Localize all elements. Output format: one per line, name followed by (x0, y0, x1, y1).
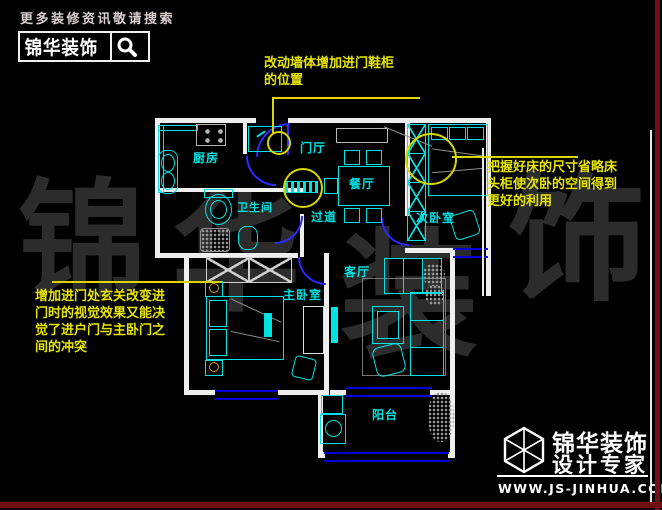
annotation-line: 间的冲突 (35, 339, 165, 356)
annotation-line: 改动墙体增加进门鞋柜 (264, 55, 394, 72)
dining-chair (344, 150, 360, 165)
annotation-top: 改动墙体增加进门鞋柜 的位置 (264, 55, 394, 89)
leader-line (452, 156, 578, 158)
room-label-master-bedroom: 主卧室 (283, 286, 322, 303)
plant (428, 392, 454, 442)
annotation-line: 更好的利用 (487, 193, 617, 210)
master-bedroom-door-arc (298, 257, 326, 285)
annotation-line: 把握好床的尺寸省略床 (487, 159, 617, 176)
annotation-line: 门时的视觉效果又能决 (35, 305, 165, 322)
wardrobe (248, 257, 292, 283)
leader-line (52, 281, 222, 283)
wardrobe (206, 257, 250, 283)
wall (243, 118, 247, 154)
leader-line (272, 97, 274, 133)
leader-line (272, 97, 420, 99)
pillow (209, 300, 227, 327)
room-label-living-room: 客厅 (344, 263, 370, 280)
stool (291, 355, 318, 382)
toilet-bowl (210, 200, 227, 219)
highlight-circle-bed (405, 133, 457, 185)
dining-chair (324, 178, 338, 194)
wall (288, 118, 491, 123)
folded-blanket (264, 313, 272, 337)
desk (303, 306, 324, 354)
room-label-balcony: 阳台 (372, 406, 398, 423)
washing-machine-drum (325, 420, 342, 437)
stove (196, 124, 226, 146)
sink-bowl (161, 154, 175, 172)
screenshot-root: 锦 华 装 饰 更多装修资讯敬请搜索 锦华装饰 (0, 0, 662, 510)
annotation-line: 增加进门处玄关改变进 (35, 288, 165, 305)
frame-right (655, 0, 660, 510)
kitchen-counter (158, 125, 198, 131)
room-label-entry-hall: 门厅 (300, 139, 326, 156)
room-label-bathroom: 卫生间 (237, 199, 273, 215)
lamp (209, 283, 219, 293)
plant (423, 264, 445, 286)
pillow (467, 127, 484, 140)
annotation-line: 头柜使次卧的空间得到 (487, 176, 617, 193)
room-label-second-bedroom: 次卧室 (416, 209, 455, 226)
footer-divider (497, 475, 648, 477)
balcony-cabinet (321, 395, 343, 414)
brand-name: 锦华装饰 (20, 33, 103, 60)
pillow (449, 127, 466, 140)
sofa-right (410, 292, 444, 376)
magnifier-icon (112, 36, 142, 58)
tv (331, 307, 338, 343)
dining-chair (366, 208, 382, 223)
room-label-kitchen: 厨房 (193, 149, 219, 166)
wall (448, 452, 455, 458)
annotation-line: 觉了进户门与主卧门之 (35, 322, 165, 339)
header-tagline: 更多装修资讯敬请搜索 (20, 8, 175, 27)
highlight-circle-shoe-cabinet (267, 131, 291, 155)
washbasin-counter (200, 228, 230, 252)
lamp (209, 362, 219, 372)
frame-bottom (0, 502, 662, 508)
footer-website: WWW.JS-JINHUA.COM (498, 481, 662, 496)
wall (184, 390, 215, 395)
annotation-line: 的位置 (264, 72, 394, 89)
annotation-left: 增加进门处玄关改变进 门时的视觉效果又能决 觉了进户门与主卧门之 间的冲突 (35, 288, 165, 356)
watermark-char: 锦 (18, 178, 146, 306)
dining-chair (344, 208, 360, 223)
annotation-right: 把握好床的尺寸省略床 头柜使次卧的空间得到 更好的利用 (487, 159, 617, 210)
sink-bowl (161, 172, 175, 190)
window (215, 390, 278, 400)
wall (155, 118, 256, 123)
bathroom-sink (238, 226, 258, 250)
room-label-dining: 餐厅 (349, 175, 375, 192)
wall (450, 253, 455, 395)
annotation-separator-line (482, 148, 484, 296)
wall (184, 253, 189, 395)
room-label-corridor: 过道 (311, 208, 337, 225)
highlight-circle-corridor (283, 168, 323, 208)
window (324, 452, 449, 462)
pillow (209, 329, 227, 356)
plant (425, 285, 445, 305)
right-edge-line (650, 130, 652, 502)
wall (405, 248, 455, 253)
coffee-table-inner (377, 311, 399, 339)
sideboard (336, 128, 388, 143)
balcony-sliding-door (346, 387, 431, 397)
dining-chair (366, 150, 382, 165)
brand-search-box: 锦华装饰 (18, 31, 150, 62)
wardrobe (407, 182, 426, 212)
cube-logo-icon (500, 426, 548, 474)
